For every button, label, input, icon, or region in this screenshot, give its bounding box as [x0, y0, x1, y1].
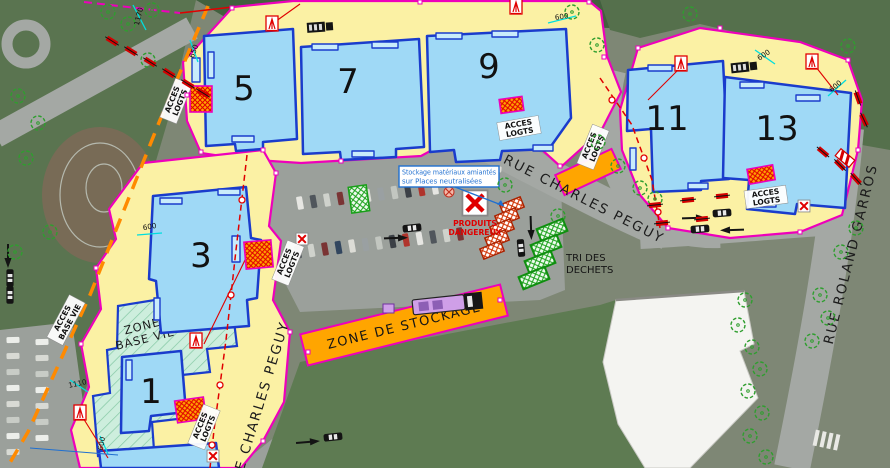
parked-car	[35, 355, 48, 361]
tri-line1: TRI DES	[565, 253, 606, 264]
car-icon	[6, 269, 13, 287]
crane-icon	[266, 16, 278, 31]
storage-container	[383, 304, 394, 313]
parked-car	[6, 353, 19, 359]
building-7	[301, 39, 424, 160]
boundary-node	[261, 148, 265, 152]
car-icon	[517, 239, 526, 257]
tri-line2: DECHETS	[566, 265, 613, 276]
access-gate	[499, 96, 524, 113]
boundary-node	[185, 93, 189, 97]
boundary-node	[306, 350, 310, 354]
crane-icon	[510, 0, 522, 14]
crane-icon	[74, 405, 86, 420]
building-label-7: 7	[337, 62, 359, 102]
building-label-9: 9	[478, 47, 500, 87]
crane-icon	[675, 56, 687, 71]
hazard-dot-icon	[444, 187, 454, 197]
no-entry-icon	[296, 233, 308, 245]
parked-car	[35, 371, 48, 377]
boundary-node	[94, 266, 98, 270]
produits-dangereux-line2: DANGEREUX	[448, 228, 501, 237]
boundary-node	[798, 230, 802, 234]
parked-car	[6, 417, 19, 423]
parked-car	[6, 385, 19, 391]
parked-car	[35, 339, 48, 345]
access-gate	[244, 240, 273, 269]
boundary-node	[261, 439, 265, 443]
building-label-5: 5	[233, 69, 255, 109]
building-label-3: 3	[190, 236, 212, 276]
boundary-node	[418, 0, 422, 4]
boundary-node	[856, 148, 860, 152]
boundary-node	[558, 164, 562, 168]
produits-dangereux-line1: PRODUITS	[453, 219, 497, 228]
boundary-node	[498, 298, 502, 302]
construction-site-plan: ZONE BASE VIE 5 7 9 11 13 3 1	[0, 0, 890, 468]
boundary-node	[274, 171, 278, 175]
boundary-node	[666, 226, 670, 230]
car-icon	[690, 225, 709, 234]
parked-car	[6, 337, 19, 343]
amiante-note-line2: sur Places neutralisées	[402, 177, 482, 186]
parked-car	[6, 401, 19, 407]
car-icon	[712, 209, 731, 218]
amiante-note-line1: Stockage matériaux amiantés	[402, 168, 496, 177]
building-label-1: 1	[140, 372, 162, 412]
boundary-node	[587, 0, 591, 4]
boundary-node	[199, 150, 203, 154]
building-label-13: 13	[755, 109, 798, 149]
boundary-node	[288, 330, 292, 334]
waste-skip	[348, 185, 369, 213]
boundary-node	[636, 46, 640, 50]
boundary-node	[230, 6, 234, 10]
site-plan-svg: ZONE BASE VIE 5 7 9 11 13 3 1	[0, 0, 890, 468]
boundary-node	[602, 55, 606, 59]
no-entry-icon	[207, 450, 219, 462]
parked-car	[6, 369, 19, 375]
parked-car	[35, 435, 48, 441]
boundary-node	[718, 26, 722, 30]
building-label-11: 11	[645, 99, 688, 139]
boundary-node	[846, 58, 850, 62]
boundary-node	[79, 342, 83, 346]
crane-icon	[806, 54, 818, 69]
boundary-node	[339, 159, 343, 163]
parked-car	[6, 433, 19, 439]
no-entry-icon	[798, 200, 810, 212]
car-icon	[6, 286, 13, 304]
parked-car	[35, 419, 48, 425]
crane-icon	[190, 333, 202, 348]
